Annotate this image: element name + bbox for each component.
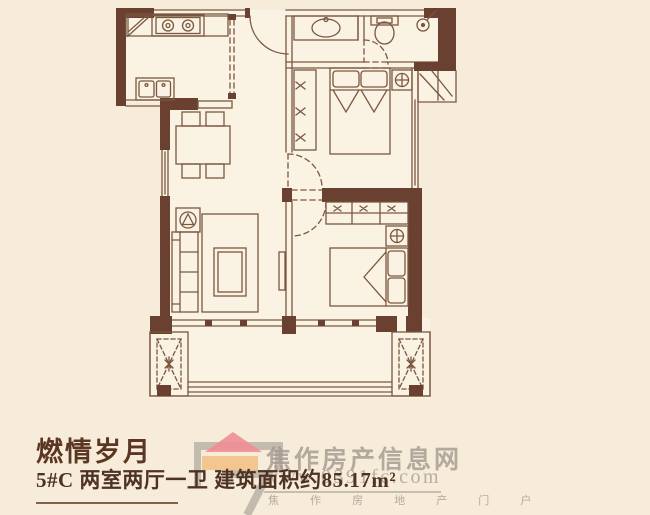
plan-subtitle: 5#C 两室两厅一卫 建筑面积约85.17m² (36, 464, 396, 494)
floorplan-page: 焦作房产信息网 www.0391fc.com 焦 作 房 地 产 门 户 燃情岁… (0, 0, 650, 515)
watermark-tagline: 焦 作 房 地 产 门 户 (268, 492, 545, 508)
divider (36, 502, 178, 504)
